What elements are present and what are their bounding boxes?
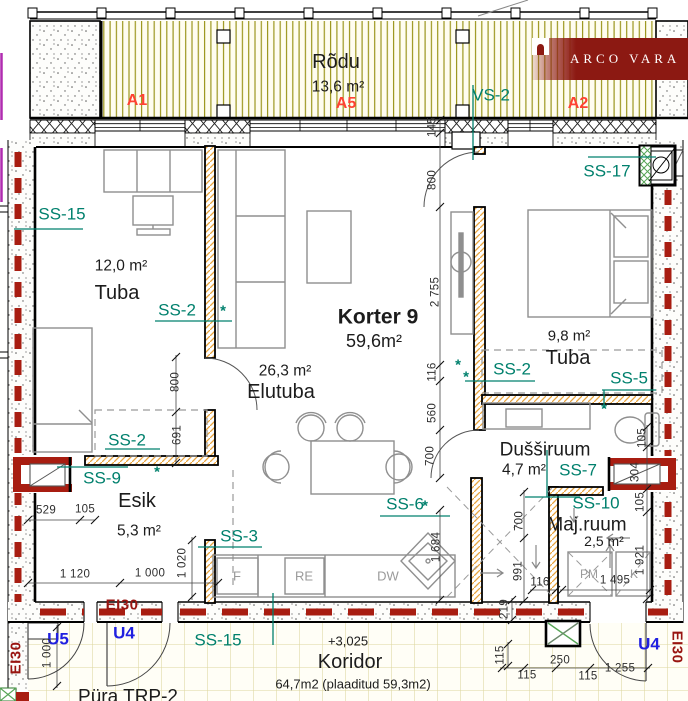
arco-vara-logo: ARCO VARA — [532, 38, 688, 80]
dim: 1 000 — [135, 568, 165, 580]
tuba-right-name: Tuba — [546, 348, 591, 368]
tag-ss17: SS-17 — [583, 163, 630, 180]
tag-ss2-tuba2: SS-2 — [493, 361, 531, 378]
majruum-area: 2,5 m² — [584, 534, 624, 548]
esik-name: Esik — [118, 491, 156, 511]
dim: 560 — [427, 403, 439, 423]
asterisk-mark: * — [154, 465, 160, 480]
elutuba-name: Elutuba — [247, 382, 315, 402]
tuba-left-name: Tuba — [95, 283, 140, 303]
fire-mark — [16, 692, 29, 701]
tag-ss9: SS-9 — [83, 470, 121, 487]
ei30-right: EI30 — [670, 631, 685, 664]
dim: 700 — [425, 446, 437, 466]
dw-label: DW — [377, 570, 399, 583]
sofa — [218, 150, 285, 348]
re-label: RE — [295, 570, 313, 583]
door-u4-left: U4 — [113, 625, 135, 642]
dim: 991 — [513, 561, 525, 581]
door-u4-right: U4 — [638, 636, 660, 653]
top-wall — [30, 120, 656, 149]
coffee-table — [307, 211, 351, 283]
asterisk-mark: * — [455, 358, 461, 373]
dussiruum-area: 4,7 m² — [502, 462, 546, 478]
tag-ss2-esik: SS-2 — [108, 432, 146, 449]
brand-name: ARCO VARA — [570, 51, 680, 67]
ss17-shaft — [640, 146, 675, 185]
koridor-name: Koridor — [318, 652, 382, 672]
koridor-area-note: 64,7m2 (plaaditud 59,3m2) — [275, 678, 430, 691]
dussiruum-name: Dušširuum — [500, 441, 591, 460]
esik-area: 5,3 m² — [117, 523, 161, 539]
left-exterior-wall — [0, 53, 36, 690]
dim: 105 — [635, 492, 647, 512]
ei30-bottom: EI30 — [106, 598, 139, 613]
fridge-label: F — [233, 570, 241, 583]
dim: 115 — [578, 671, 597, 683]
dim: 116 — [427, 362, 439, 381]
floor-plan: ARCO VARA Rõdu 13,6 m² A1 A5 VS-2 A2 SS-… — [0, 0, 688, 701]
balcony-name: Rõdu — [312, 52, 360, 72]
asterisk-mark: * — [601, 402, 607, 417]
dim: 115 — [517, 670, 536, 682]
dim: 145 — [427, 117, 439, 137]
dim: 1 120 — [60, 569, 90, 581]
bed-double — [528, 210, 652, 317]
ei30-left: EI30 — [9, 642, 24, 675]
tag-ss6: SS-6 — [386, 496, 424, 513]
tuba-left-area: 12,0 m² — [95, 258, 148, 274]
dim: 1 921 — [635, 545, 647, 575]
pm-label: PM — [580, 568, 598, 580]
apartment-area: 59,6m² — [346, 332, 402, 350]
dim: 250 — [550, 655, 570, 667]
bottom-label: Püra TRP-2 — [78, 688, 178, 701]
bed-single — [33, 328, 92, 452]
dim: 2 755 — [430, 277, 442, 307]
asterisk-mark: * — [422, 499, 428, 514]
dim: 105 — [637, 428, 649, 448]
dim: 691 — [172, 425, 184, 445]
tv-console — [451, 212, 473, 334]
dim: 116 — [530, 577, 549, 589]
elutuba-area: 26,3 m² — [259, 363, 312, 379]
zone-a5: A5 — [336, 96, 356, 112]
tag-vs2: VS-2 — [472, 87, 510, 104]
dim: 700 — [514, 511, 526, 531]
zone-a2: A2 — [568, 96, 588, 112]
dim: 304 — [630, 462, 642, 482]
dim: 115 — [495, 645, 507, 664]
tag-ss7: SS-7 — [559, 462, 597, 479]
dim: 219 — [499, 599, 511, 619]
tag-ss3: SS-3 — [220, 528, 258, 545]
dim: 1 495 — [600, 575, 630, 587]
dim: 800 — [427, 170, 439, 190]
level-mark: +3,025 — [328, 635, 368, 648]
tag-ss15-koridor: SS-15 — [194, 632, 241, 649]
tag-ss15: SS-15 — [38, 206, 85, 223]
dim: 1 684 — [431, 532, 443, 562]
zone-a1: A1 — [127, 93, 147, 109]
tag-ss10: SS-10 — [572, 495, 619, 512]
dim: 800 — [170, 372, 182, 392]
dim: 1 000 — [42, 638, 54, 668]
tag-ss2-tuba: SS-2 — [158, 302, 196, 319]
balcony-railing — [28, 8, 657, 19]
balcony-area: 13,6 m² — [312, 79, 365, 95]
dim: 105 — [75, 504, 95, 516]
ss9-fire-box — [13, 455, 72, 493]
tuba-right-area: 9,8 m² — [548, 329, 591, 344]
apartment-name: Korter 9 — [338, 307, 419, 328]
majruum-name: Maj.ruum — [547, 516, 626, 535]
asterisk-mark: * — [220, 304, 226, 319]
asterisk-mark: * — [463, 370, 469, 385]
dim: 529 — [36, 505, 56, 517]
dining-set — [263, 413, 412, 494]
dim: 1 020 — [177, 548, 189, 578]
dim: 1 255 — [605, 663, 635, 675]
tag-ss5: SS-5 — [610, 370, 648, 387]
desk-and-monitor — [104, 150, 202, 235]
